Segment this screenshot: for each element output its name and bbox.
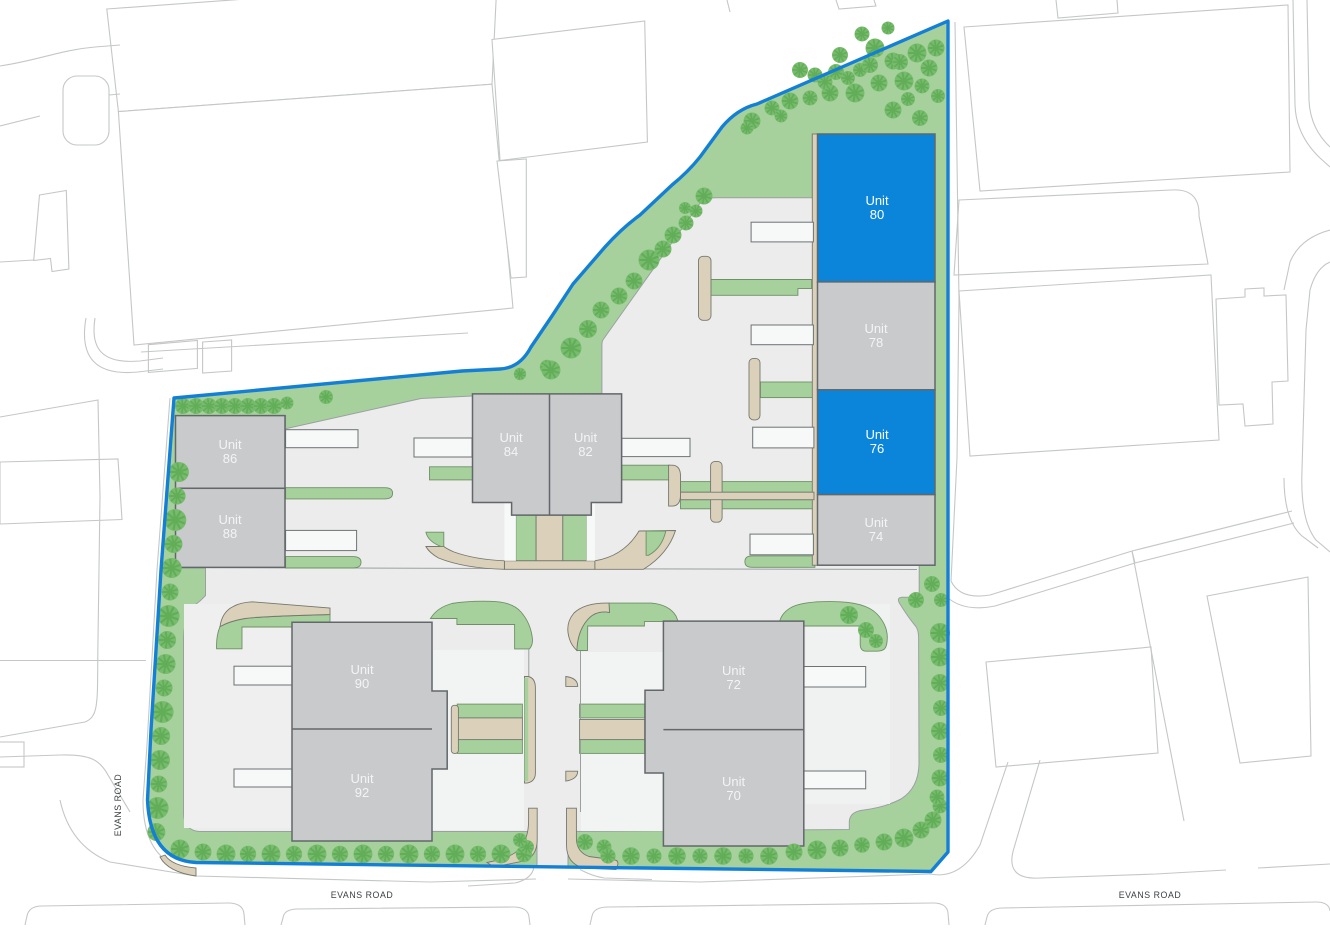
svg-text:EVANS ROAD: EVANS ROAD	[1119, 890, 1182, 900]
svg-text:72: 72	[726, 677, 740, 692]
svg-text:78: 78	[869, 335, 883, 350]
svg-text:76: 76	[870, 441, 884, 456]
svg-text:82: 82	[578, 444, 592, 459]
svg-text:EVANS ROAD: EVANS ROAD	[331, 890, 394, 900]
svg-text:86: 86	[223, 451, 237, 466]
svg-text:84: 84	[504, 444, 518, 459]
svg-text:80: 80	[870, 207, 884, 222]
svg-text:92: 92	[355, 785, 369, 800]
svg-text:90: 90	[355, 676, 369, 691]
svg-text:EVANS ROAD: EVANS ROAD	[113, 774, 123, 837]
svg-text:88: 88	[223, 526, 237, 541]
svg-text:74: 74	[869, 529, 883, 544]
svg-text:70: 70	[726, 788, 740, 803]
